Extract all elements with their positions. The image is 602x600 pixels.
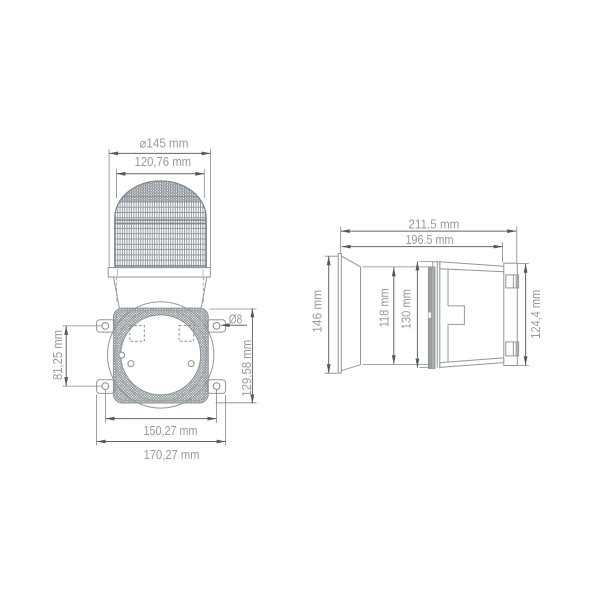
svg-text:81,25 mm: 81,25 mm	[50, 330, 65, 380]
svg-text:Ø8: Ø8	[229, 311, 243, 326]
svg-text:150,27 mm: 150,27 mm	[144, 423, 198, 438]
svg-text:146 mm: 146 mm	[310, 290, 325, 333]
svg-text:129,58 mm: 129,58 mm	[239, 340, 254, 397]
svg-text:124,4 mm: 124,4 mm	[528, 290, 543, 339]
svg-text:196.5 mm: 196.5 mm	[406, 232, 454, 247]
svg-text:130 mm: 130 mm	[399, 289, 414, 329]
svg-text:170,27 mm: 170,27 mm	[144, 447, 200, 462]
svg-text:211.5 mm: 211.5 mm	[408, 217, 459, 232]
svg-text:⌀145 mm: ⌀145 mm	[139, 136, 188, 151]
svg-text:120,76 mm: 120,76 mm	[135, 154, 192, 169]
svg-text:118 mm: 118 mm	[377, 288, 392, 327]
